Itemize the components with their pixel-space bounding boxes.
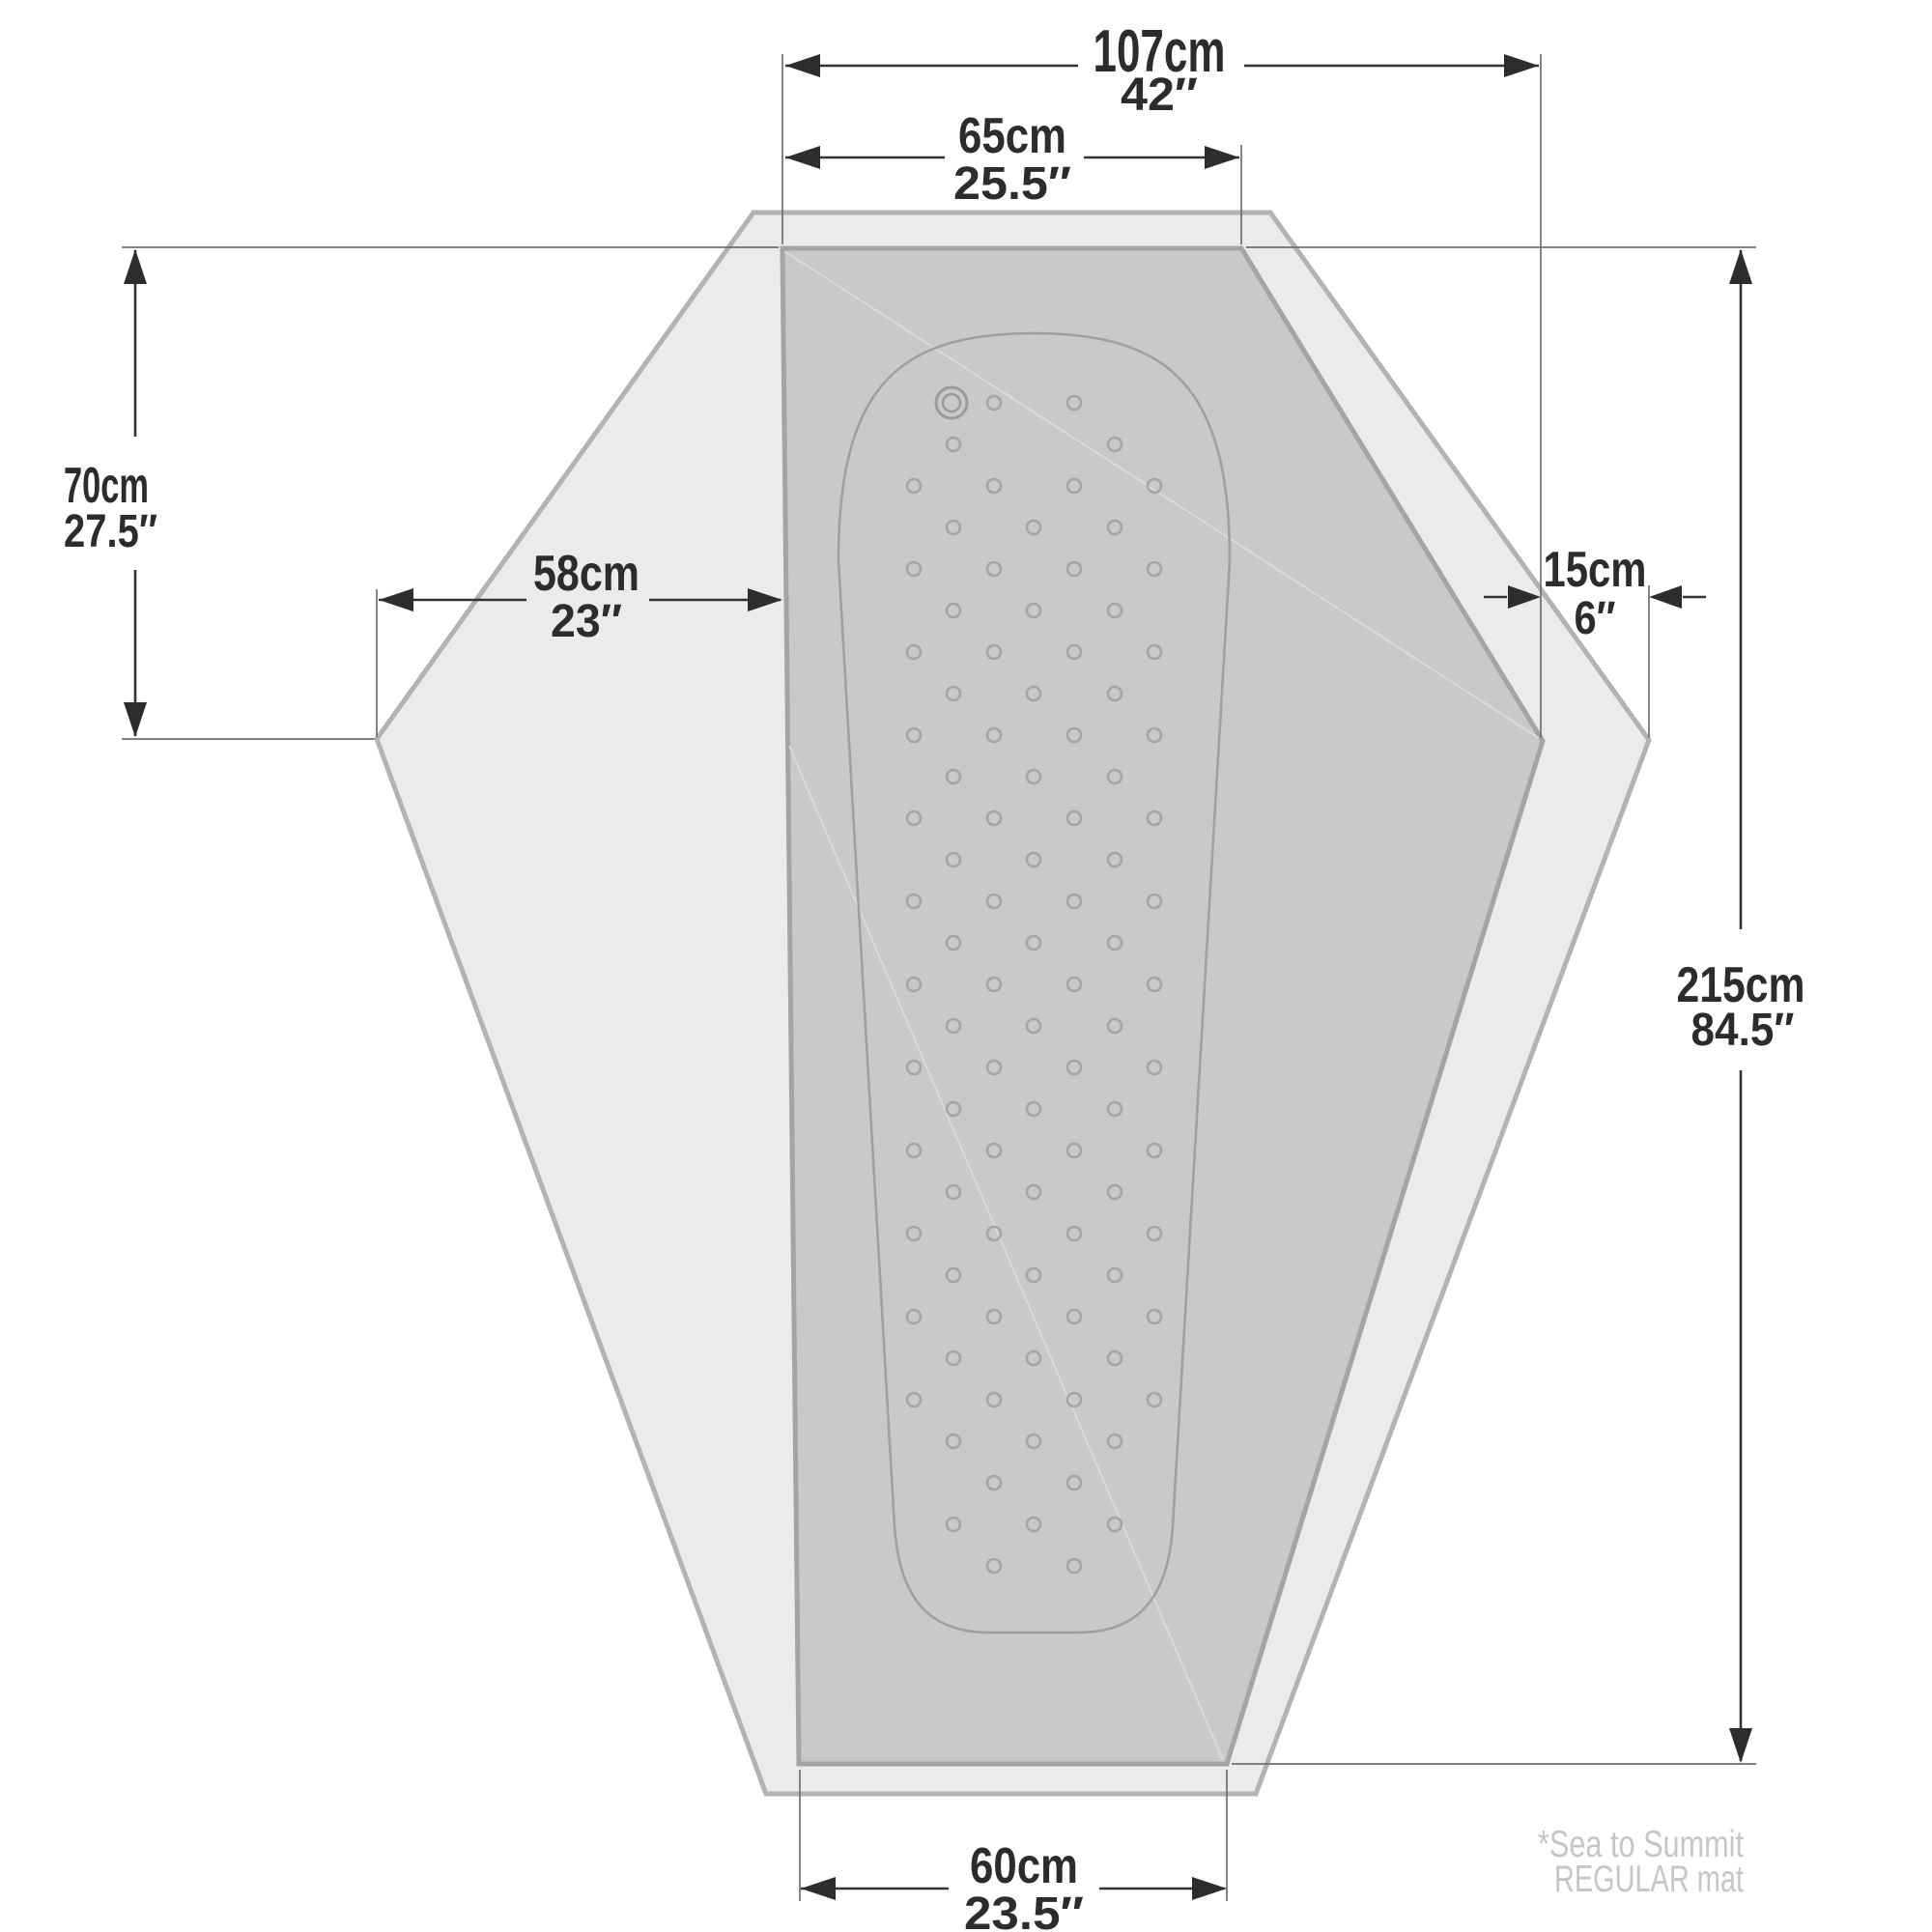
- diagram-canvas: 107cm 42″ 65cm 25.5″ 70cm 27.5″ 58cm 23″…: [0, 0, 1932, 1932]
- arrowhead-up: [124, 249, 147, 284]
- arrowhead-left: [379, 588, 413, 611]
- dim-label-imperial: 23.5″: [964, 1889, 1084, 1932]
- dim-label-imperial: 6″: [1575, 593, 1616, 644]
- arrowhead-left: [785, 54, 820, 77]
- arrowhead-down: [1729, 1728, 1752, 1763]
- dim-inner-top-width: 65cm 25.5″: [785, 108, 1239, 210]
- dim-label-metric: 15cm: [1544, 542, 1647, 598]
- dim-label-imperial: 25.5″: [953, 158, 1071, 210]
- dim-label-imperial: 23″: [551, 596, 622, 647]
- arrowhead-up: [1729, 249, 1752, 284]
- dim-label-metric: 58cm: [533, 546, 639, 602]
- arrowhead-left: [801, 1877, 836, 1900]
- dim-label-imperial: 42″: [1121, 70, 1198, 121]
- arrowhead-right: [1192, 1877, 1227, 1900]
- arrowhead-left: [785, 146, 820, 169]
- arrowhead-down: [124, 702, 147, 737]
- dim-inner-length: 215cm 84.5″: [1677, 249, 1805, 1763]
- arrowhead-right: [1205, 146, 1239, 169]
- dim-label-imperial: 27.5″: [64, 506, 157, 557]
- dim-label-metric: 60cm: [970, 1838, 1078, 1894]
- footnote-line2: REGULAR mat: [1554, 1859, 1744, 1900]
- dim-head-depth: 70cm 27.5″: [64, 249, 157, 737]
- arrowhead-inward-right: [1649, 585, 1682, 609]
- dim-label-imperial: 84.5″: [1691, 1005, 1795, 1056]
- dim-fly-width: 107cm 42″: [785, 18, 1539, 121]
- tent-dimension-diagram: 107cm 42″ 65cm 25.5″ 70cm 27.5″ 58cm 23″…: [0, 0, 1932, 1932]
- dim-label-metric: 65cm: [958, 108, 1066, 164]
- dim-inner-bottom-width: 60cm 23.5″: [801, 1838, 1227, 1932]
- footnote: *Sea to Summit REGULAR mat: [1538, 1824, 1744, 1900]
- arrowhead-right: [1504, 54, 1539, 77]
